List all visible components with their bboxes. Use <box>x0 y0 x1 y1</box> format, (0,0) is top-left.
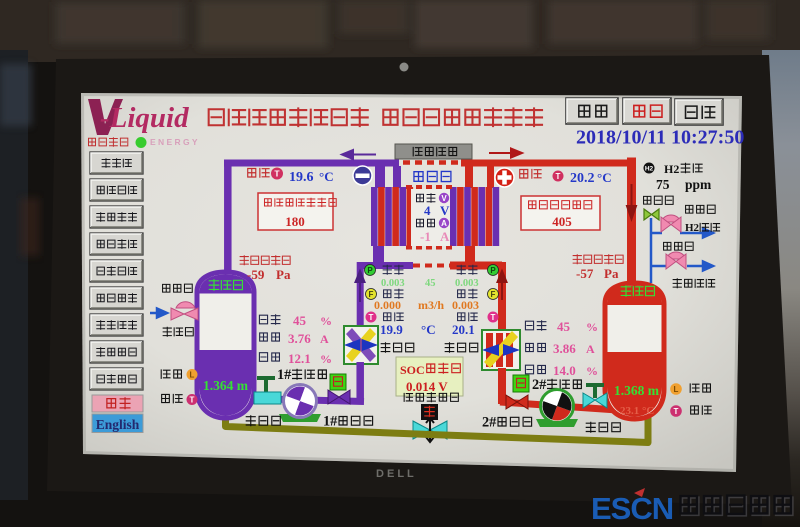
svg-text:A: A <box>441 219 447 228</box>
svg-text:19.9: 19.9 <box>380 322 403 337</box>
svg-text:P: P <box>490 266 496 275</box>
svg-text:F: F <box>369 290 374 299</box>
svg-text:3.76: 3.76 <box>288 331 311 346</box>
svg-text:0.003: 0.003 <box>381 278 405 289</box>
svg-text:4: 4 <box>424 203 431 218</box>
svg-text:T: T <box>556 172 561 181</box>
svg-text:A: A <box>586 342 595 356</box>
svg-text:#: # <box>539 377 546 393</box>
svg-text:H2: H2 <box>685 222 700 234</box>
svg-text:°C: °C <box>597 170 612 185</box>
svg-text:ESCN: ESCN <box>591 491 673 526</box>
svg-text:-57: -57 <box>576 266 594 281</box>
svg-text:180: 180 <box>285 214 305 229</box>
svg-text:V: V <box>440 203 450 218</box>
svg-text:-59: -59 <box>247 267 265 282</box>
svg-text:#: # <box>330 414 337 430</box>
svg-text:T: T <box>190 396 195 405</box>
svg-text:45: 45 <box>557 319 571 334</box>
svg-text:2018/10/11 10:27:50: 2018/10/11 10:27:50 <box>576 127 744 149</box>
svg-text:ppm: ppm <box>685 177 712 192</box>
svg-text:H2: H2 <box>645 166 654 173</box>
svg-text:0.003: 0.003 <box>455 278 479 289</box>
svg-text:V: V <box>441 194 447 203</box>
svg-text:Pa: Pa <box>604 266 619 281</box>
svg-text:%: % <box>586 320 598 334</box>
svg-text:1.368 m: 1.368 m <box>614 383 660 398</box>
svg-text:45: 45 <box>425 278 436 289</box>
svg-text:19.6: 19.6 <box>289 170 314 185</box>
svg-text:English: English <box>96 417 140 432</box>
svg-text:E N E R G Y: E N E R G Y <box>150 137 198 147</box>
svg-text:0.014 V: 0.014 V <box>406 379 448 394</box>
svg-text:75: 75 <box>656 177 670 192</box>
svg-text:H2: H2 <box>664 162 679 176</box>
svg-text:%: % <box>320 352 332 366</box>
svg-text:T: T <box>674 407 679 416</box>
svg-text:0.003: 0.003 <box>452 298 479 312</box>
svg-text:L: L <box>190 371 195 380</box>
svg-text:0.000: 0.000 <box>374 298 401 312</box>
svg-text:°C: °C <box>319 169 334 184</box>
svg-text:1.364 m: 1.364 m <box>203 378 249 393</box>
svg-text:%: % <box>320 314 332 328</box>
svg-text:m3/h: m3/h <box>418 298 444 312</box>
svg-text:3.86: 3.86 <box>553 341 576 356</box>
svg-text:D E L L: D E L L <box>376 468 414 480</box>
svg-text:#: # <box>489 415 496 431</box>
svg-text:405: 405 <box>552 214 572 229</box>
svg-text:L: L <box>674 385 679 394</box>
svg-text:23.1 °C: 23.1 °C <box>620 405 654 417</box>
svg-text:20.2: 20.2 <box>570 171 595 186</box>
svg-text:SOC: SOC <box>400 363 425 377</box>
svg-text:20.1: 20.1 <box>452 322 475 337</box>
svg-text:45: 45 <box>293 313 307 328</box>
svg-text:#: # <box>284 367 291 383</box>
svg-text:A: A <box>440 229 450 244</box>
svg-text:T: T <box>369 313 374 322</box>
svg-text:T: T <box>274 169 280 179</box>
svg-text:14.0: 14.0 <box>553 363 576 378</box>
svg-text:F: F <box>491 290 496 299</box>
svg-text:%: % <box>586 364 598 378</box>
svg-text:A: A <box>320 332 329 346</box>
svg-text:Pa: Pa <box>276 267 291 282</box>
svg-text:°C: °C <box>421 322 436 337</box>
svg-text:P: P <box>367 266 373 275</box>
svg-text:12.1: 12.1 <box>288 351 311 366</box>
svg-text:-Liquid: -Liquid <box>100 102 189 134</box>
svg-text:T: T <box>491 313 496 322</box>
svg-text:-1: -1 <box>420 229 431 244</box>
